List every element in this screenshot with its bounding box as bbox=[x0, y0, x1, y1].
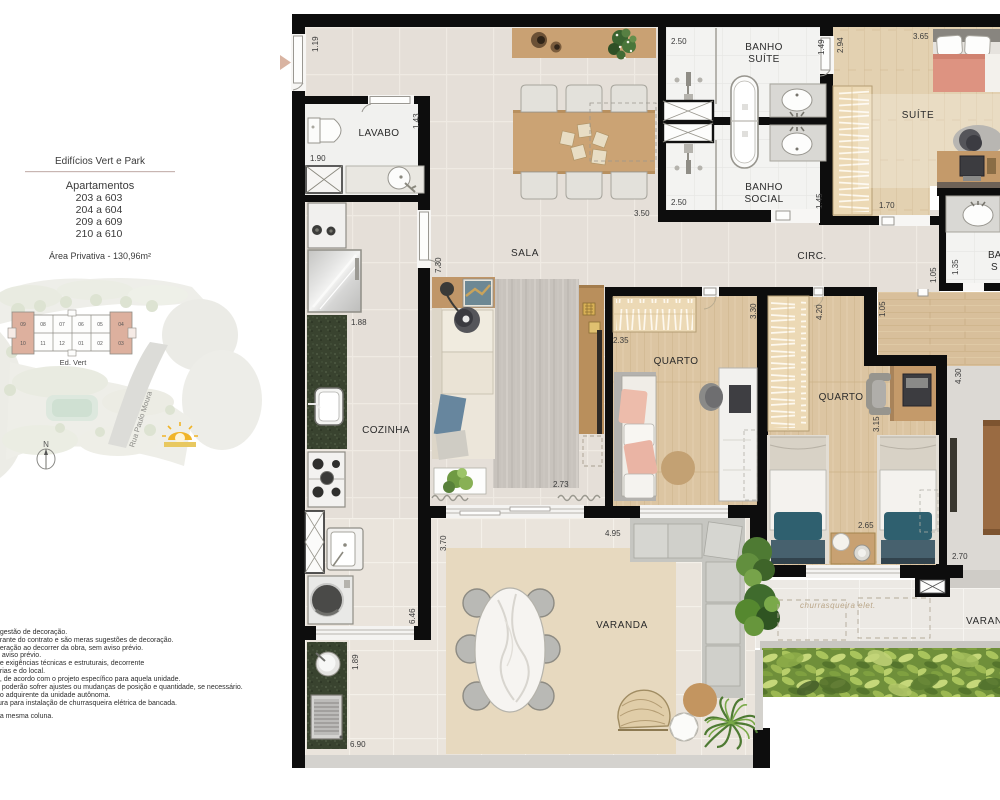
svg-text:QUARTO: QUARTO bbox=[654, 356, 699, 367]
svg-text:3.15: 3.15 bbox=[872, 416, 881, 432]
svg-text:SOCIAL: SOCIAL bbox=[744, 194, 783, 205]
svg-text:6.90: 6.90 bbox=[350, 740, 366, 749]
svg-text:1.35: 1.35 bbox=[951, 259, 960, 275]
svg-text:1.43: 1.43 bbox=[412, 113, 421, 129]
svg-text:12: 12 bbox=[59, 341, 65, 347]
svg-text:03: 03 bbox=[118, 341, 124, 347]
svg-text:a, de acordo com o projeto esp: a, de acordo com o projeto específico pa… bbox=[0, 676, 181, 683]
svg-text:BANHO: BANHO bbox=[745, 42, 783, 53]
svg-text:1.19: 1.19 bbox=[311, 36, 320, 52]
svg-text:7.30: 7.30 bbox=[434, 257, 443, 273]
svg-text:do adquirente da unidade autôn: do adquirente da unidade autônoma. bbox=[0, 692, 110, 699]
svg-text:204 a 604: 204 a 604 bbox=[76, 204, 123, 216]
svg-text:6.46: 6.46 bbox=[408, 608, 417, 624]
svg-text:2.50: 2.50 bbox=[671, 198, 687, 207]
svg-text:1.90: 1.90 bbox=[310, 154, 326, 163]
svg-text:tura para instalação de churra: tura para instalação de churrasqueira el… bbox=[0, 700, 177, 707]
svg-text:QUARTO: QUARTO bbox=[819, 392, 864, 403]
svg-text:VARANDA: VARANDA bbox=[596, 620, 648, 631]
svg-text:05: 05 bbox=[97, 322, 103, 328]
svg-text:o poderão sofrer ajustes ou mu: o poderão sofrer ajustes ou mudanças de … bbox=[0, 684, 243, 691]
svg-text:S: S bbox=[991, 262, 998, 273]
svg-text:2.94: 2.94 bbox=[836, 37, 845, 53]
svg-text:churrasqueira elet.: churrasqueira elet. bbox=[800, 601, 876, 610]
svg-text:3.65: 3.65 bbox=[913, 32, 929, 41]
svg-text:CIRC.: CIRC. bbox=[797, 251, 826, 262]
svg-text:Edifícios Vert e Park: Edifícios Vert e Park bbox=[55, 156, 146, 167]
svg-text:4.30: 4.30 bbox=[954, 368, 963, 384]
svg-text:SUÍTE: SUÍTE bbox=[902, 108, 934, 121]
svg-text:BANHO: BANHO bbox=[745, 182, 783, 193]
svg-text:2.73: 2.73 bbox=[553, 480, 569, 489]
svg-text:01: 01 bbox=[78, 341, 84, 347]
svg-text:LAVABO: LAVABO bbox=[359, 128, 400, 139]
svg-text:árias e do local.: árias e do local. bbox=[0, 668, 45, 675]
svg-text:1.45: 1.45 bbox=[815, 193, 824, 209]
svg-text:BA: BA bbox=[988, 250, 1000, 261]
svg-text:2.35: 2.35 bbox=[613, 336, 629, 345]
svg-text:02: 02 bbox=[97, 341, 103, 347]
svg-text:3.50: 3.50 bbox=[634, 209, 650, 218]
svg-text:1.70: 1.70 bbox=[879, 201, 895, 210]
svg-text:1.88: 1.88 bbox=[351, 318, 367, 327]
svg-text:1.05: 1.05 bbox=[929, 267, 938, 283]
svg-text:de exigências técnicas e estru: de exigências técnicas e estruturais, de… bbox=[0, 660, 144, 667]
svg-text:e aviso prévio.: e aviso prévio. bbox=[0, 652, 41, 659]
svg-text:Área Privativa - 130,96m²: Área Privativa - 130,96m² bbox=[49, 251, 151, 261]
svg-text:07: 07 bbox=[59, 322, 65, 328]
svg-text:deração ao decorrer da obra, s: deração ao decorrer da obra, sem aviso p… bbox=[0, 645, 143, 652]
svg-text:209 a 609: 209 a 609 bbox=[76, 216, 123, 228]
svg-text:1.49: 1.49 bbox=[817, 39, 826, 55]
svg-text:06: 06 bbox=[78, 322, 84, 328]
svg-text:Ed. Vert: Ed. Vert bbox=[60, 358, 88, 367]
svg-text:04: 04 bbox=[118, 322, 124, 328]
svg-text:09: 09 bbox=[20, 322, 26, 328]
svg-text:1.05: 1.05 bbox=[878, 301, 887, 317]
svg-text:10: 10 bbox=[20, 341, 26, 347]
svg-text:08: 08 bbox=[40, 322, 46, 328]
svg-text:3.70: 3.70 bbox=[439, 535, 448, 551]
svg-text:2.50: 2.50 bbox=[671, 37, 687, 46]
svg-text:ugestão de decoração.: ugestão de decoração. bbox=[0, 629, 67, 636]
svg-text:SALA: SALA bbox=[511, 248, 539, 259]
svg-text:grante do contrato e são meras: grante do contrato e são meras sugestões… bbox=[0, 637, 173, 644]
svg-text:da mesma coluna.: da mesma coluna. bbox=[0, 713, 53, 720]
svg-text:VARAN: VARAN bbox=[966, 616, 1000, 627]
svg-text:1.89: 1.89 bbox=[351, 654, 360, 670]
svg-text:Apartamentos: Apartamentos bbox=[66, 180, 135, 192]
svg-text:N: N bbox=[43, 440, 49, 449]
svg-text:COZINHA: COZINHA bbox=[362, 425, 410, 436]
svg-text:4.95: 4.95 bbox=[605, 529, 621, 538]
svg-text:3.30: 3.30 bbox=[749, 303, 758, 319]
svg-text:11: 11 bbox=[40, 341, 45, 347]
svg-text:210 a 610: 210 a 610 bbox=[76, 228, 123, 240]
svg-text:4.20: 4.20 bbox=[815, 304, 824, 320]
svg-text:2.70: 2.70 bbox=[952, 552, 968, 561]
svg-text:SUÍTE: SUÍTE bbox=[748, 52, 779, 65]
svg-text:203 a 603: 203 a 603 bbox=[76, 192, 123, 204]
svg-text:2.65: 2.65 bbox=[858, 521, 874, 530]
